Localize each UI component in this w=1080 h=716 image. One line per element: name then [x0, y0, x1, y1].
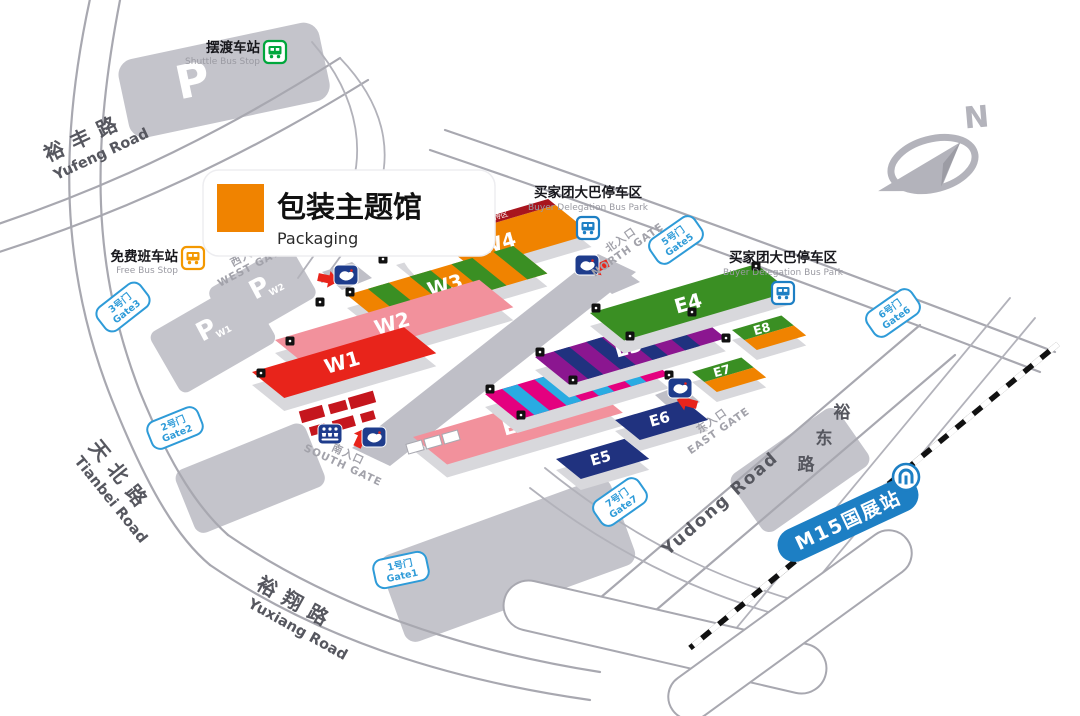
- yudong-char-dong: 东: [816, 428, 833, 449]
- free-bus-icon: [182, 247, 204, 269]
- svg-text:买家团大巴停车区: 买家团大巴停车区: [534, 184, 642, 201]
- legend-title: 包装主题馆: [277, 190, 422, 224]
- gate3-badge: 3号门 Gate3: [93, 279, 153, 335]
- exhibition-map: 买家团接待区 W4 W3 W2 W1 E1: [0, 0, 1080, 716]
- svg-text:Buyer Delegation Bus Park: Buyer Delegation Bus Park: [528, 203, 649, 213]
- svg-text:Buyer Delegation Bus Park: Buyer Delegation Bus Park: [723, 268, 844, 278]
- lot-southwest: [173, 420, 328, 535]
- buyer-bus-icon-east: [772, 282, 794, 304]
- svg-text:免费班车站: 免费班车站: [111, 248, 179, 265]
- legend: 包装主题馆 Packaging: [203, 170, 495, 256]
- shuttle-bus-icon: [264, 41, 286, 63]
- svg-text:Shuttle Bus Stop: Shuttle Bus Stop: [185, 57, 260, 67]
- tianbei-road-label: 天北路 Tianbei Road: [69, 435, 171, 546]
- compass-north-label: N: [963, 99, 991, 136]
- legend-swatch: [217, 184, 264, 232]
- svg-text:Free Bus Stop: Free Bus Stop: [116, 266, 178, 276]
- hall-e7: E7: [692, 357, 766, 402]
- gate2-badge: 2号门 Gate2: [145, 404, 206, 451]
- parking-lot-northwest: [116, 20, 333, 141]
- yudong-char-yu: 裕: [834, 402, 851, 423]
- yuxiang-road-label: 裕翔路 Yuxiang Road: [243, 571, 363, 663]
- west-service-icon: [334, 265, 358, 285]
- compass: N: [861, 95, 1007, 206]
- svg-text:买家团大巴停车区: 买家团大巴停车区: [729, 249, 837, 266]
- svg-text:摆渡车站: 摆渡车站: [206, 39, 260, 56]
- south-service-icon: [362, 427, 386, 447]
- hall-e8: E8: [732, 315, 806, 360]
- east-service-icon: [668, 378, 692, 398]
- south-assembly-icon: [318, 424, 342, 444]
- gate5-badge: 5号门 Gate5: [646, 213, 707, 268]
- legend-subtitle: Packaging: [277, 229, 358, 248]
- yudong-char-lu: 路: [798, 454, 816, 475]
- metro-logo-icon: [893, 464, 919, 490]
- free-bus-stop: 免费班车站 Free Bus Stop: [111, 247, 205, 276]
- buyer-bus-icon-north: [577, 217, 599, 239]
- gate6-badge: 6号门 Gate6: [863, 286, 924, 341]
